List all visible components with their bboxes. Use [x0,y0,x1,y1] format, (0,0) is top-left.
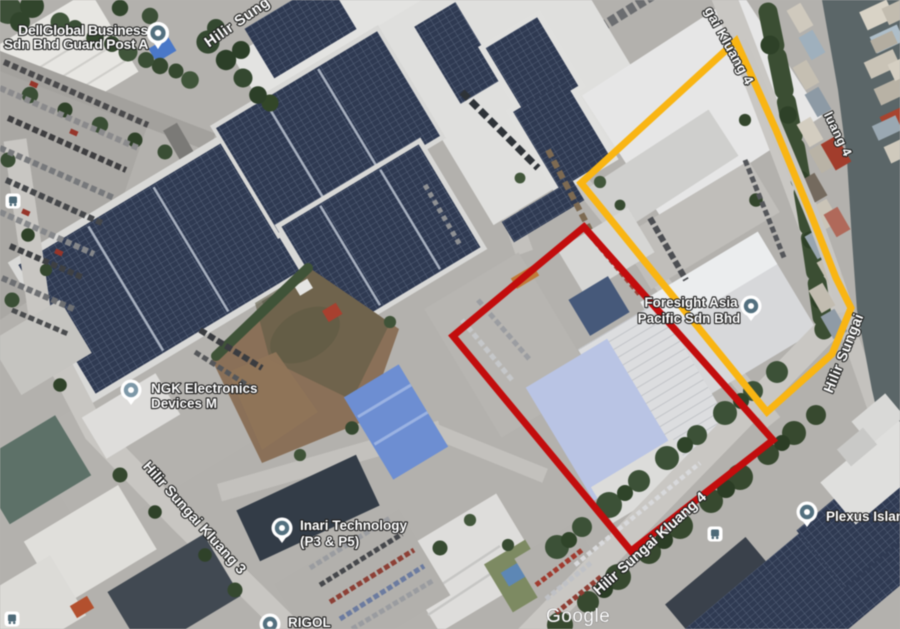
svg-text:(P3 & P5): (P3 & P5) [300,534,359,549]
svg-text:Devices M: Devices M [151,396,217,411]
svg-text:RIGOL: RIGOL [288,615,331,629]
svg-text:NGK Electronics: NGK Electronics [151,381,258,396]
svg-text:Inari Technology: Inari Technology [300,518,408,533]
svg-text:Pacific Sdn Bhd: Pacific Sdn Bhd [638,311,741,326]
svg-text:Plexus Islan: Plexus Islan [826,509,900,524]
svg-text:Google: Google [546,606,610,627]
svg-text:Sdn Bhd Guard Post A: Sdn Bhd Guard Post A [4,36,149,52]
svg-text:Foresight Asia: Foresight Asia [644,295,738,310]
